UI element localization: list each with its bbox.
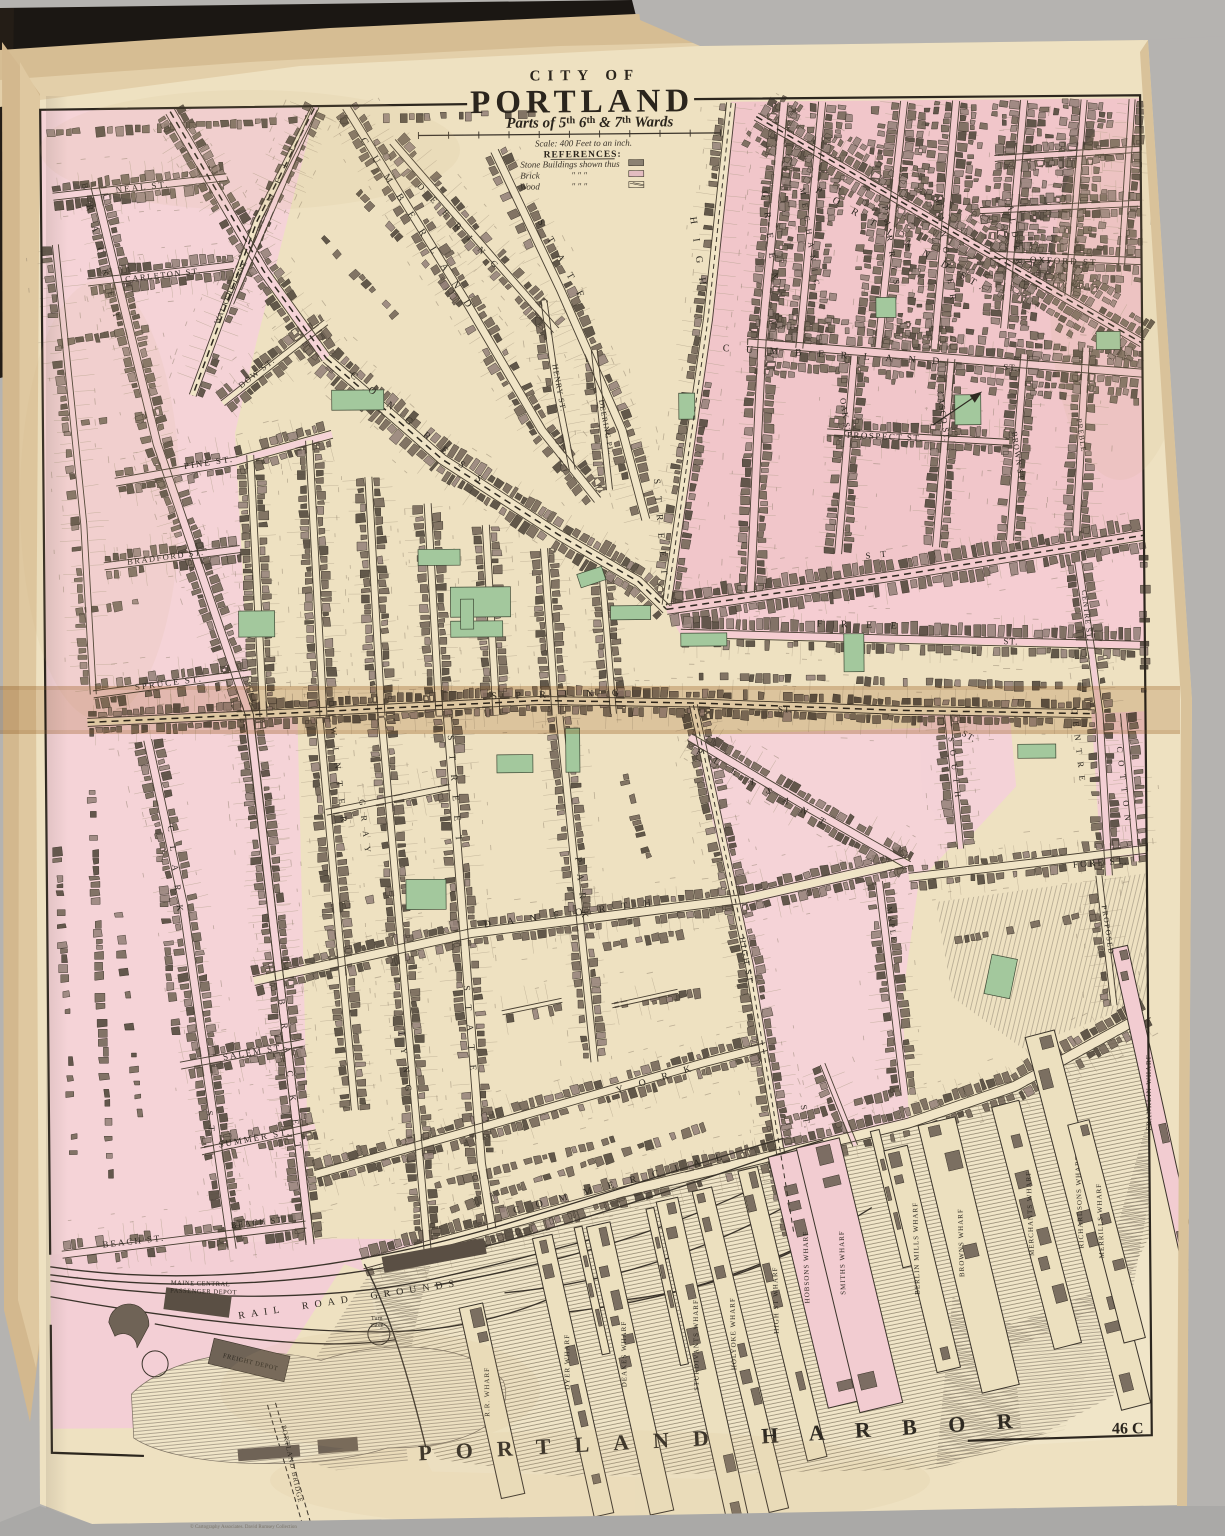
svg-text:Wood: Wood — [520, 181, 541, 191]
svg-text:Turn: Turn — [371, 1316, 383, 1322]
svg-text:Scale: 400 Feet to an inch.: Scale: 400 Feet to an inch. — [535, 138, 632, 149]
svg-text:Table: Table — [370, 1323, 384, 1329]
svg-text:DYER WHARF: DYER WHARF — [563, 1334, 571, 1390]
svg-text:Brick: Brick — [520, 170, 541, 180]
svg-text:STURDIVANTS WHARF: STURDIVANTS WHARF — [692, 1299, 701, 1391]
svg-text:F R E E: F R E E — [817, 619, 905, 632]
svg-text:″ ″ ″: ″ ″ ″ — [572, 170, 588, 180]
svg-text:CITY OF: CITY OF — [530, 68, 641, 85]
svg-text:SMITHS WHARF: SMITHS WHARF — [838, 1230, 848, 1295]
svg-text:″ ″ ″: ″ ″ ″ — [572, 181, 588, 191]
svg-text:46 C: 46 C — [1112, 1420, 1144, 1437]
svg-text:ST.: ST. — [1003, 636, 1018, 646]
svg-text:ST.: ST. — [1003, 362, 1019, 373]
svg-text:DEAKES WHARF: DEAKES WHARF — [620, 1321, 629, 1388]
svg-text:Stone Buildings shown thus: Stone Buildings shown thus — [520, 159, 620, 170]
svg-text:© Cartography Associates. Davi: © Cartography Associates. David Rumsey C… — [190, 1524, 297, 1530]
